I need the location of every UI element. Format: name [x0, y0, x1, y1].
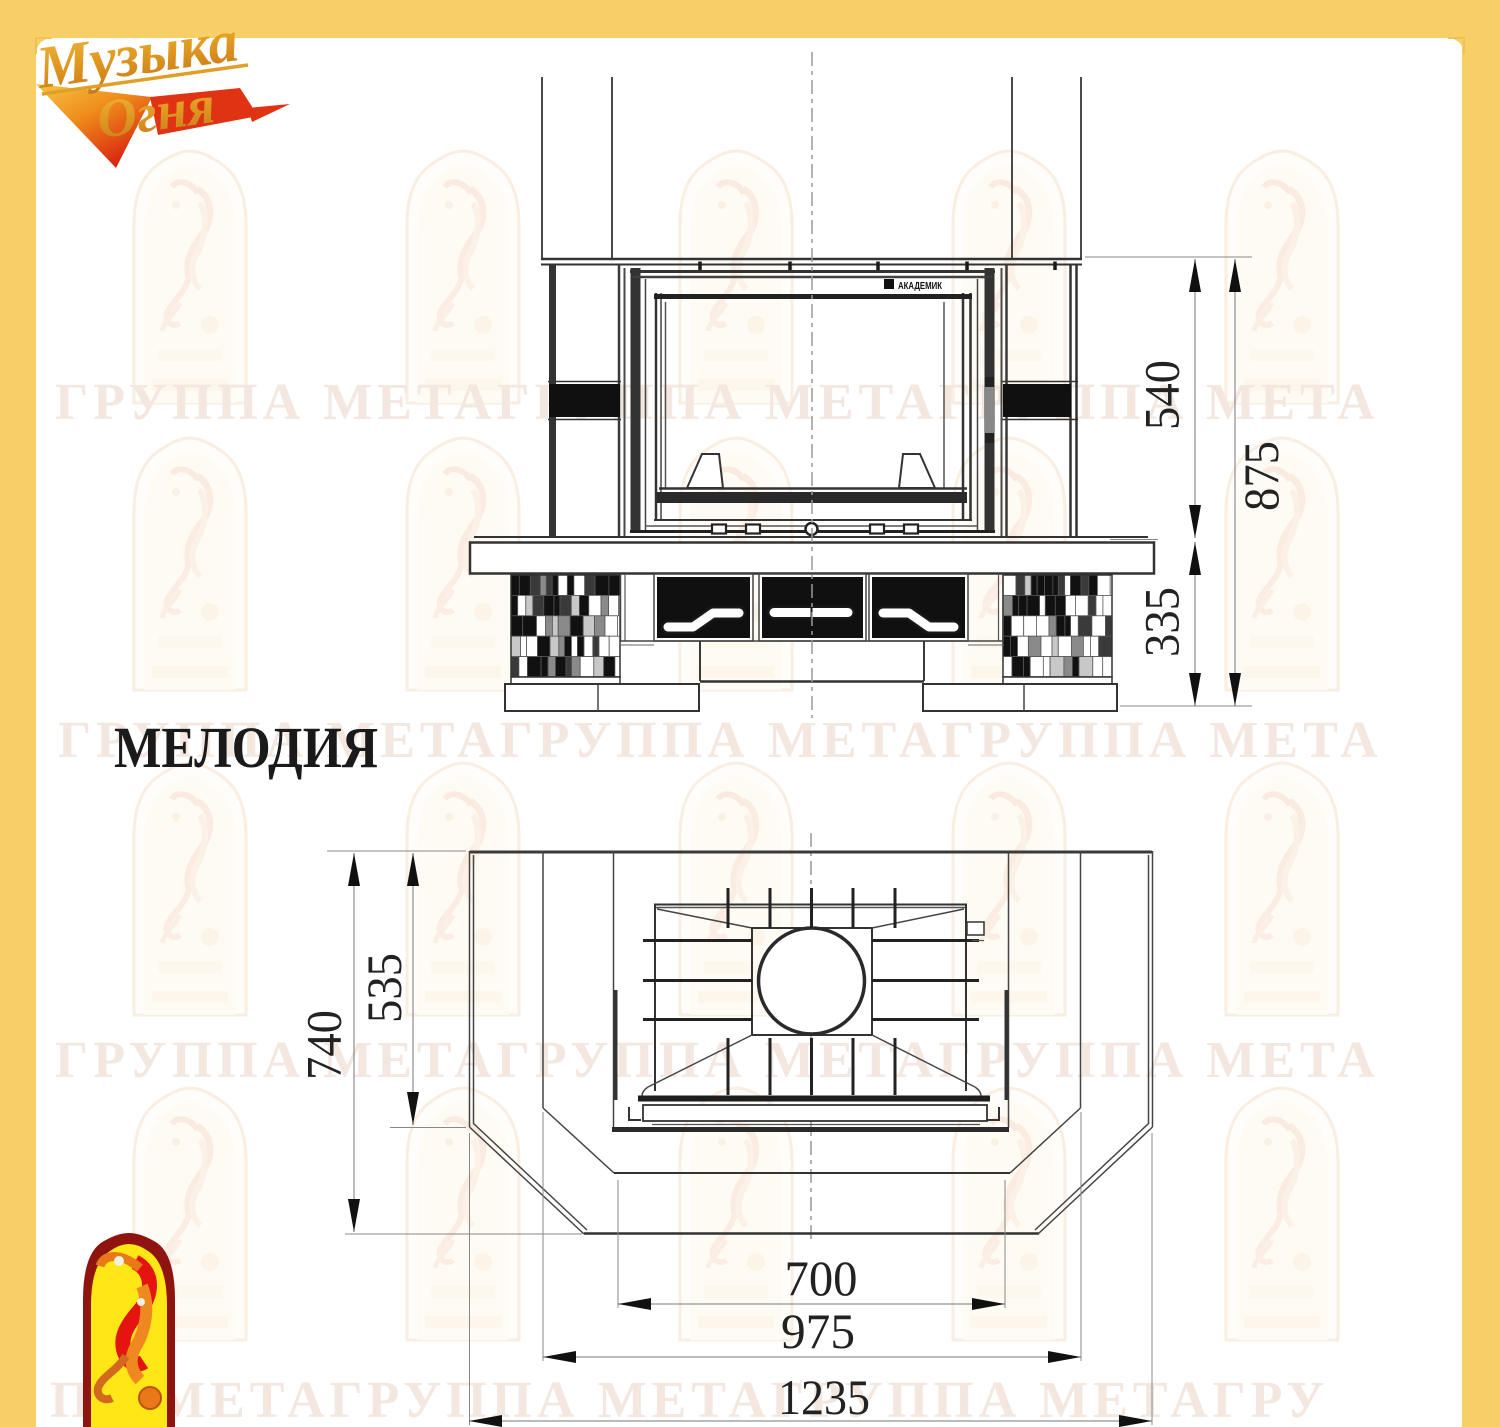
svg-text:875: 875	[1233, 441, 1289, 511]
svg-text:535: 535	[356, 953, 412, 1023]
svg-text:740: 740	[296, 1010, 352, 1080]
svg-text:335: 335	[1134, 587, 1190, 657]
svg-text:700: 700	[785, 1250, 858, 1306]
svg-text:МЕЛОДИЯ: МЕЛОДИЯ	[114, 715, 378, 780]
svg-text:975: 975	[781, 1303, 855, 1359]
svg-text:АКАДЕМИК: АКАДЕМИК	[898, 281, 943, 292]
svg-text:ГРУППА МЕТАГРУППА МЕТАГРУППА М: ГРУППА МЕТАГРУППА МЕТАГРУППА МЕТА	[55, 1032, 1380, 1089]
svg-text:1235: 1235	[778, 1369, 870, 1425]
svg-text:540: 540	[1134, 360, 1190, 430]
